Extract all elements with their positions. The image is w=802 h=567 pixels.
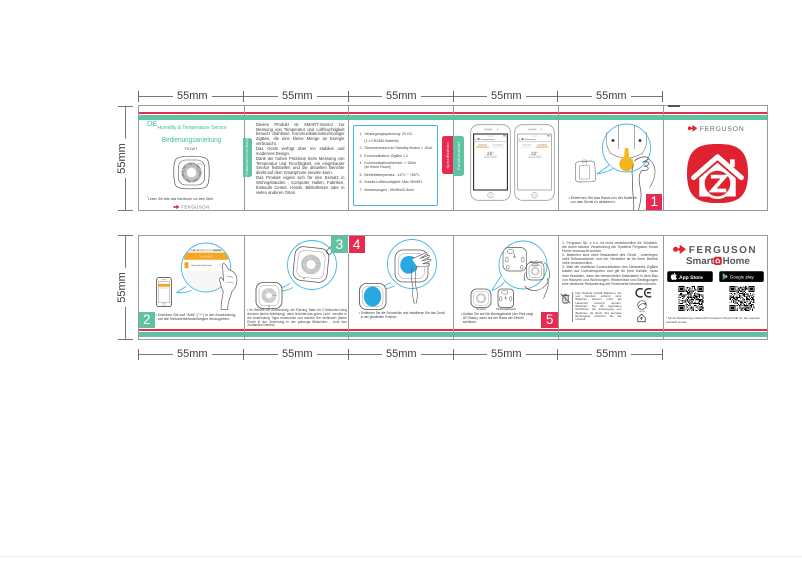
svg-text:Sensor: Sensor: [476, 307, 487, 311]
svg-text:26°: 26°: [487, 151, 494, 156]
svg-text:Feuchtesensor: Feuchtesensor: [524, 137, 536, 140]
svg-text:FERGUSON: FERGUSON: [181, 205, 209, 210]
svg-text:32°: 32°: [531, 151, 538, 156]
svg-text:Smart: Smart: [686, 256, 715, 266]
svg-text:FERGUSON: FERGUSON: [688, 245, 756, 255]
svg-text:ZYA_SN/SE: ZYA_SN/SE: [199, 255, 213, 258]
svg-text:Temperatur: Temperatur: [478, 143, 487, 146]
svg-text:Google play: Google play: [730, 275, 754, 280]
svg-text:Temperatur: Temperatur: [522, 143, 531, 146]
svg-text:App Store: App Store: [679, 275, 703, 280]
svg-text:Feuchtigkeit: Feuchtigkeit: [493, 143, 503, 146]
svg-text:FERGUSON: FERGUSON: [700, 126, 745, 133]
svg-text:Montagebasis: Montagebasis: [496, 307, 516, 311]
svg-text:Netzwerkeinstellungen: Netzwerkeinstellungen: [191, 264, 213, 267]
svg-text:Temperatursensor: Temperatursensor: [480, 137, 495, 140]
svg-text:Feuchtigkeit: Feuchtigkeit: [537, 143, 547, 146]
svg-text:Home: Home: [723, 256, 750, 266]
